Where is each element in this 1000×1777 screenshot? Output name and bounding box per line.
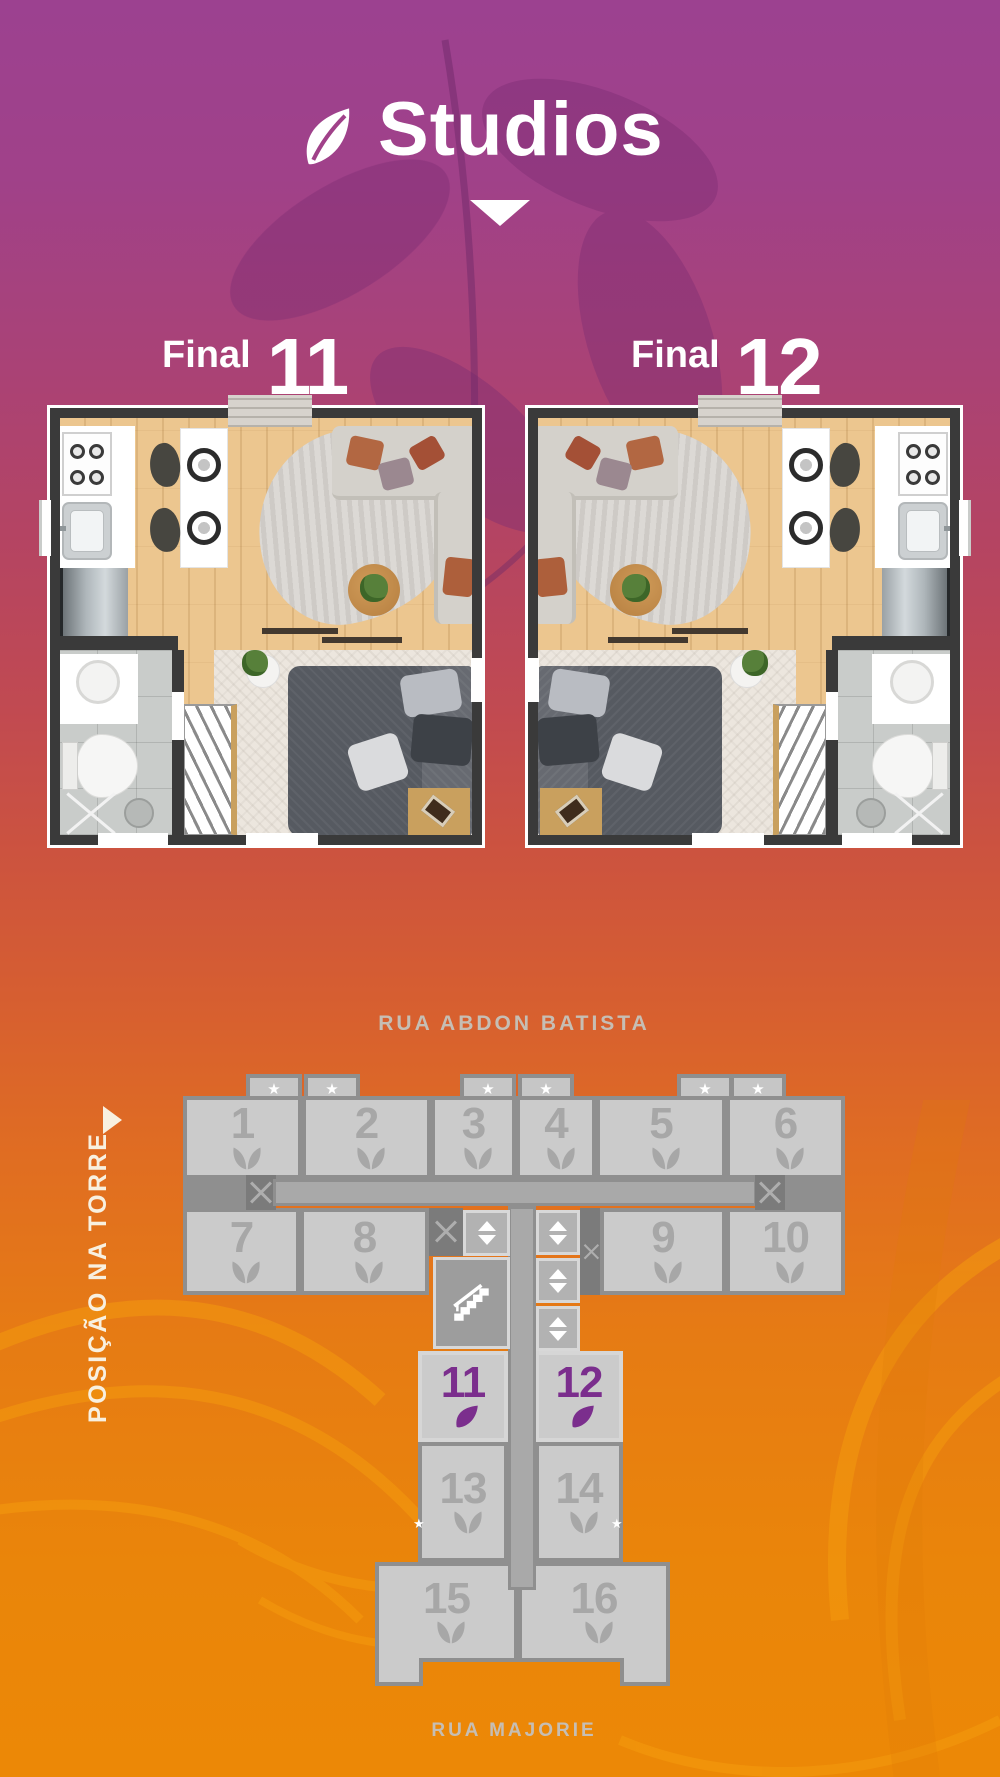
- elevator: [463, 1210, 510, 1256]
- unit-number: 8: [353, 1218, 376, 1258]
- window: [98, 833, 168, 846]
- unit-number: 15: [423, 1579, 470, 1619]
- unit-10: 10: [726, 1208, 845, 1295]
- window: [246, 833, 318, 846]
- floorplan-drawing: [528, 408, 960, 845]
- building-wing: [620, 1658, 670, 1686]
- unit-number: 5: [649, 1104, 672, 1144]
- leaf-icon: [231, 1259, 261, 1285]
- leaf-icon: [546, 1145, 576, 1171]
- leaf-icon: [354, 1259, 384, 1285]
- unit-number: 11: [441, 1363, 486, 1403]
- unit-number: 4: [544, 1104, 567, 1144]
- unit-number: 14: [556, 1469, 603, 1509]
- window: [842, 833, 912, 846]
- final-label: Final: [631, 334, 720, 377]
- final-12-heading: Final 12: [631, 330, 821, 404]
- unit-number: 12: [556, 1363, 603, 1403]
- arrow-up-icon: [549, 1221, 567, 1231]
- leaf-icon: [653, 1259, 683, 1285]
- leaf-icon: [651, 1145, 681, 1171]
- bedroom-window: [527, 658, 539, 702]
- unit-number: 6: [774, 1104, 797, 1144]
- unit-2: 2: [302, 1096, 431, 1179]
- bedroom-window: [471, 658, 483, 702]
- unit-number: 7: [230, 1218, 253, 1258]
- leaf-icon: [775, 1145, 805, 1171]
- final-number: 11: [267, 330, 348, 404]
- leaf-icon: [463, 1145, 493, 1171]
- x-mark-icon: [583, 1243, 597, 1260]
- window: [692, 833, 764, 846]
- shaft: [755, 1175, 785, 1210]
- street-label-top: RUA ABDON BATISTA: [183, 1012, 845, 1036]
- floorplan-final-11: [50, 408, 482, 845]
- kitchen-window: [39, 500, 51, 556]
- leaf-icon: [436, 1619, 466, 1645]
- x-mark-icon: [434, 1220, 458, 1244]
- unit-7: 7: [183, 1208, 300, 1295]
- arrow-down-icon: [549, 1283, 567, 1293]
- stairs-icon: [449, 1280, 495, 1326]
- x-mark-icon: [758, 1181, 782, 1205]
- shaft: [429, 1208, 463, 1256]
- leaf-icon: [569, 1404, 599, 1430]
- unit-number: 3: [462, 1104, 485, 1144]
- star-icon: ★: [413, 1516, 425, 1532]
- leaf-icon: [453, 1404, 483, 1430]
- leaf-icon: [232, 1145, 262, 1171]
- street-label-bottom: RUA MAJORIE: [183, 1720, 845, 1742]
- arrow-right-icon: [103, 1106, 122, 1134]
- tower-diagram: ★ ★ ★ ★ ★ ★ 1 2 3 4 5 6: [183, 1072, 845, 1688]
- unit-number: 10: [762, 1218, 809, 1258]
- chevron-down-icon: [470, 200, 530, 226]
- entry-door-mat: [228, 395, 312, 427]
- corridor-vertical: [508, 1206, 536, 1590]
- bathroom-door: [172, 692, 184, 740]
- final-label: Final: [162, 334, 251, 377]
- wall-filler: [775, 1177, 845, 1208]
- unit-13: 13: [418, 1442, 508, 1562]
- unit-12-highlighted: 12: [535, 1351, 623, 1442]
- unit-number: 13: [440, 1469, 487, 1509]
- arrow-down-icon: [478, 1235, 496, 1245]
- shaft: [580, 1208, 600, 1295]
- unit-3: 3: [431, 1096, 516, 1179]
- unit-15: 15: [375, 1562, 518, 1662]
- leaf-icon: [584, 1619, 614, 1645]
- arrow-down-icon: [549, 1235, 567, 1245]
- floorplan-drawing: [50, 408, 482, 845]
- final-11-heading: Final 11: [162, 330, 347, 404]
- elevator: [536, 1258, 580, 1303]
- unit-number: 9: [651, 1218, 674, 1258]
- unit-4: 4: [516, 1096, 596, 1179]
- unit-number: 1: [231, 1104, 254, 1144]
- unit-1: 1: [183, 1096, 302, 1179]
- flyer-page: Studios Final 11 Final 12: [0, 0, 1000, 1777]
- elevator: [536, 1306, 580, 1351]
- star-icon: ★: [611, 1516, 623, 1532]
- x-mark-icon: [249, 1181, 273, 1205]
- leaf-icon: [775, 1259, 805, 1285]
- unit-16: 16: [518, 1562, 670, 1662]
- kitchen-window: [959, 500, 971, 556]
- unit-5: 5: [596, 1096, 726, 1179]
- final-number: 12: [736, 330, 821, 404]
- tower-position-label: POSIÇÃO NA TORRE: [84, 1147, 113, 1423]
- unit-11-highlighted: 11: [418, 1351, 508, 1442]
- unit-number: 2: [355, 1104, 378, 1144]
- bathroom-door: [826, 692, 838, 740]
- exterior-walls: [528, 408, 960, 845]
- staircase: [433, 1257, 510, 1349]
- wall-filler: [183, 1177, 253, 1208]
- arrow-up-icon: [478, 1221, 496, 1231]
- leaf-icon: [296, 104, 362, 170]
- page-title: Studios: [378, 92, 664, 168]
- building-wing: [375, 1658, 423, 1686]
- arrow-up-icon: [549, 1317, 567, 1327]
- unit-14: 14: [535, 1442, 623, 1562]
- leaf-icon: [356, 1145, 386, 1171]
- unit-number: 16: [571, 1579, 618, 1619]
- arrow-down-icon: [549, 1331, 567, 1341]
- leaf-icon: [453, 1509, 483, 1535]
- arrow-up-icon: [549, 1269, 567, 1279]
- unit-6: 6: [726, 1096, 845, 1179]
- corridor-horizontal: [273, 1179, 757, 1206]
- shaft: [246, 1175, 276, 1210]
- leaf-icon: [569, 1509, 599, 1535]
- floorplan-final-12: [528, 408, 960, 845]
- unit-8: 8: [300, 1208, 429, 1295]
- unit-9: 9: [600, 1208, 726, 1295]
- elevator: [536, 1210, 580, 1255]
- entry-door-mat: [698, 395, 782, 427]
- exterior-walls: [50, 408, 482, 845]
